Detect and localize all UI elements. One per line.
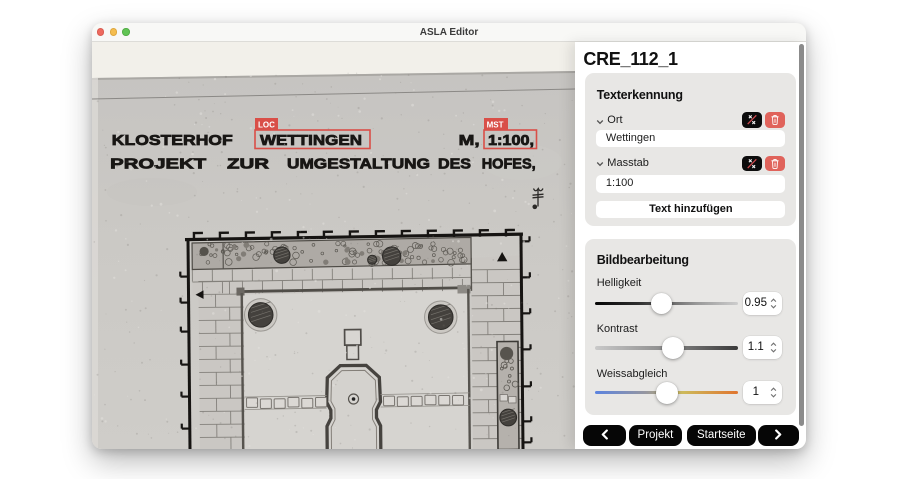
svg-text:ZUR: ZUR [227,155,269,172]
svg-text:DES: DES [438,155,471,172]
svg-text:PROJEKT: PROJEKT [110,155,206,172]
svg-text:LOC: LOC [258,120,275,129]
svg-text:HOFES,: HOFES, [482,155,536,172]
svg-text:M,: M, [459,132,480,149]
svg-text:WETTINGEN: WETTINGEN [260,132,362,149]
svg-text:KLOSTERHOF: KLOSTERHOF [112,132,233,149]
svg-text:UMGESTALTUNG: UMGESTALTUNG [287,155,430,172]
svg-text:MST: MST [487,120,504,129]
svg-text:1:100,: 1:100, [488,132,534,149]
